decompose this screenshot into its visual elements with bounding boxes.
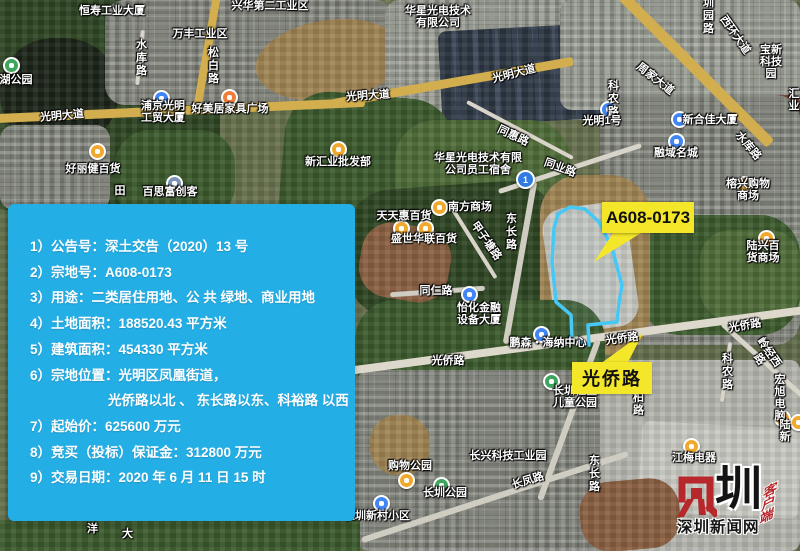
map-label: 洋 (86, 523, 97, 536)
road-name-callout: 光侨路 (572, 362, 652, 394)
shopping-icon (431, 199, 448, 216)
map-label: 水库路 (135, 39, 146, 78)
map-label: 圳园路 (702, 0, 713, 36)
map-label: 浦京光明 工贸大厦 (141, 100, 185, 124)
map-label: 长兴科技工业园 (470, 450, 547, 462)
map-label: 科农路 (721, 353, 732, 392)
map-label: 好美居家具广场 (192, 103, 269, 115)
map-label: 恒寿工业大厦 (79, 5, 145, 17)
park-icon (3, 57, 20, 74)
map-label: 鹏森・海纳中心 (510, 337, 587, 349)
info-line: 光侨路以北 、 东长路以东、科裕路 以西 (30, 388, 341, 414)
jian-logo-icon (675, 472, 717, 518)
map-label: 东长路 (588, 455, 599, 494)
info-line: 7）起始价：625600 万元 (30, 414, 341, 440)
map-label: 怡化金融 设备大厦 (457, 302, 501, 326)
map-label: 柏路 (632, 391, 643, 417)
map-label: 汇业 (789, 88, 800, 112)
map-label: 榕兴购物商场 (722, 178, 774, 202)
map-label: 万丰工业区 (173, 28, 228, 40)
map-label: 湖公园 (0, 74, 33, 86)
map-label: 南方商场 (448, 201, 492, 213)
place-icon (461, 286, 478, 303)
shenzhen-news-watermark: 圳 深圳新闻网 客户端 (655, 460, 800, 551)
map-label: 宝新科技园 (757, 44, 786, 80)
map-label: 陆新 (778, 419, 793, 443)
site-name: 深圳新闻网 (677, 515, 760, 537)
map-label: 兴华第二工业区 (232, 0, 309, 12)
map-label: 科农路 (607, 80, 618, 119)
map-label: 长圳公园 (423, 487, 467, 499)
map-label: 光明1号 (582, 115, 621, 127)
map-label: 华星光电技术 有限公司 (405, 5, 471, 29)
map-label: 宏旭电脑 (770, 374, 790, 422)
map-label: 好丽健百货 (66, 163, 121, 175)
info-line: 8）竞买（投标）保证金：312800 万元 (30, 440, 341, 466)
info-line: 4）土地面积：188520.43 平方米 (30, 311, 341, 337)
parcel-id-callout: A608-0173 (602, 202, 694, 233)
map-label: 田 (115, 185, 126, 197)
info-line: 5）建筑面积：454330 平方米 (30, 337, 341, 363)
map-label: 百思富创客 (143, 186, 198, 198)
shopping-icon (89, 143, 106, 160)
info-line: 3）用途：二类居住用地、公 共 绿地、商业用地 (30, 285, 341, 311)
info-line: 9）交易日期：2020 年 6 月 11 日 15 时 (30, 465, 341, 491)
brand-zhen-character: 圳 (715, 466, 762, 513)
map-label: 松白路 (207, 47, 218, 86)
land-auction-info-panel: 1）公告号：深土交告（2020）13 号2）宗地号：A608-01733）用途：… (8, 204, 355, 521)
map-label: 大 (121, 528, 132, 541)
map-label: 东长路 (505, 213, 516, 252)
info-line: 1）公告号：深土交告（2020）13 号 (30, 234, 341, 260)
satellite-map-screenshot: 恒寿工业大厦兴华第二工业区万丰工业区水库路松白路光明大道浦京光明 工贸大厦好美居… (0, 0, 800, 551)
map-label: 新合佳大厦 (683, 114, 738, 126)
map-label: 融域名城 (654, 147, 698, 159)
map-label: 陆兴百货商场 (745, 240, 782, 264)
parcel-id-text: A608-0173 (606, 208, 690, 228)
road-name-text: 光侨路 (582, 365, 642, 391)
map-label: 光侨路 (432, 355, 465, 367)
map-label: 天天惠百货 (377, 210, 432, 222)
map-label: 同仁路 (420, 285, 453, 297)
info-line: 2）宗地号：A608-0173 (30, 260, 341, 286)
map-label: 华星光电技术有限 公司员工宿舍 (434, 152, 522, 176)
shopping-icon (398, 472, 415, 489)
info-line: 6）宗地位置：光明区凤凰街道， (30, 363, 341, 389)
map-label: 新汇业批发部 (305, 156, 371, 168)
map-label: 盛世华联百货 (391, 233, 457, 245)
map-label: 购物公园 (388, 460, 432, 472)
